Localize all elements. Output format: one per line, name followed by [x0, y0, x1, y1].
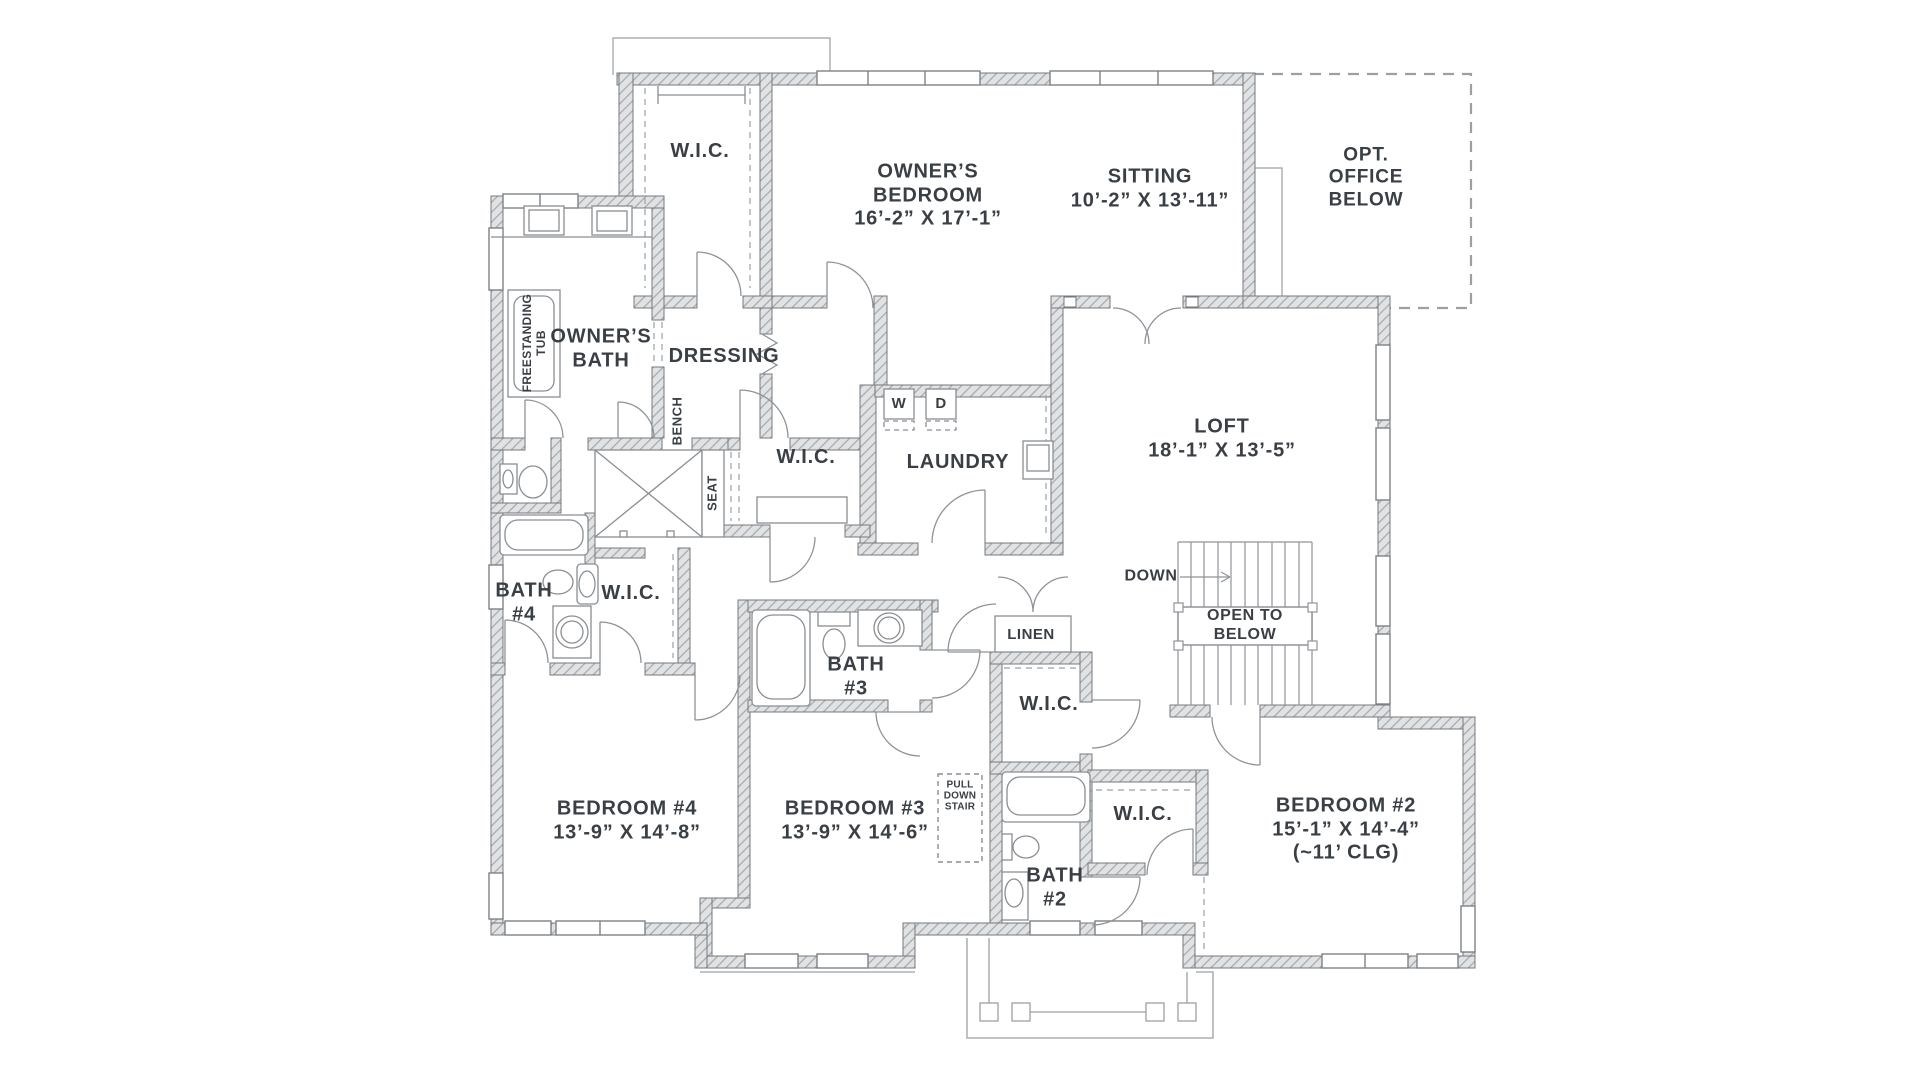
freestanding-tub-line1: FREESTANDING [520, 294, 534, 393]
owner-bath-line2: BATH [550, 349, 651, 373]
porch-outline [967, 938, 1213, 1038]
window-bottom-bedroom2-a [1322, 954, 1408, 968]
window-right-loft-1 [1376, 345, 1390, 420]
label-dryer: D [935, 395, 946, 413]
bedroom2-name: BEDROOM #2 [1272, 795, 1420, 819]
label-bench: BENCH [669, 397, 684, 446]
bedroom3-dims: 13’-9” X 14’-6” [781, 821, 929, 845]
window-right-loft-4 [1376, 634, 1390, 704]
window-bottom-bath2-a [1030, 921, 1080, 935]
freestanding-tub-line2: TUB [534, 294, 548, 393]
bedroom2-dims: 15’-1” X 14’-4” [1272, 818, 1420, 842]
window-right-bedroom2 [1461, 906, 1475, 952]
window-bottom-bath2-b [1095, 921, 1142, 935]
window-bottom-bedroom3-b [817, 954, 868, 968]
window-bottom-bedroom4-a [505, 921, 551, 935]
down-arrow [1180, 572, 1230, 582]
label-freestanding-tub: FREESTANDING TUB [520, 294, 548, 393]
room-label-bath4: BATH #4 [495, 579, 552, 626]
room-label-laundry: LAUNDRY [907, 451, 1010, 475]
opt-office-line1: OPT. [1329, 144, 1404, 166]
pull-down-stair-line3: STAIR [944, 802, 976, 813]
window-left-bedroom4 [489, 873, 503, 919]
stair-treads-lower [1191, 645, 1299, 705]
window-top-sitting [1050, 71, 1213, 85]
label-open-to-below: OPEN TO BELOW [1207, 607, 1283, 645]
room-label-wic-middle: W.I.C. [776, 446, 835, 470]
label-washer: W [892, 395, 907, 413]
label-down: DOWN [1124, 568, 1177, 587]
opt-office-line2: OFFICE [1329, 167, 1404, 189]
room-label-opt-office: OPT. OFFICE BELOW [1329, 144, 1404, 211]
bedroom4-name: BEDROOM #4 [553, 797, 701, 821]
bedroom2-ceiling: (~11’ CLG) [1272, 842, 1420, 866]
window-bottom-bedroom3-a [745, 954, 798, 968]
window-bottom-bedroom4-b [556, 921, 645, 935]
loft-dims: 18’-1” X 13’-5” [1148, 439, 1296, 463]
window-bottom-bedroom2-b [1417, 954, 1458, 968]
bath4-line1: BATH [495, 579, 552, 603]
window-right-loft-3 [1376, 556, 1390, 626]
pull-down-stair-line2: DOWN [944, 791, 976, 802]
owner-bedroom-line1: OWNER’S [854, 161, 1002, 185]
room-label-wic-bed3: W.I.C. [1019, 693, 1078, 717]
floor-plan-page: W.I.C. OWNER’S BEDROOM 16’-2” X 17’-1” S… [0, 0, 1920, 1080]
open-to-below-line1: OPEN TO [1207, 607, 1283, 626]
bath2-line2: #2 [1026, 888, 1083, 912]
stair-treads-upper [1191, 542, 1299, 607]
pull-down-stair-line1: PULL [944, 780, 976, 791]
room-label-bedroom4: BEDROOM #4 13’-9” X 14’-8” [553, 797, 701, 844]
label-pull-down-stair: PULL DOWN STAIR [944, 780, 976, 813]
open-to-below-line2: BELOW [1207, 626, 1283, 645]
room-label-wic-bath4: W.I.C. [601, 582, 660, 606]
room-label-bath3: BATH #3 [827, 653, 884, 700]
room-label-bedroom3: BEDROOM #3 13’-9” X 14’-6” [781, 797, 929, 844]
opt-office-line3: BELOW [1329, 189, 1404, 211]
sitting-name: SITTING [1071, 165, 1229, 189]
window-top-owner-bedroom [817, 71, 980, 85]
room-label-wic-bed2: W.I.C. [1113, 803, 1172, 827]
window-right-loft-2 [1376, 428, 1390, 500]
bedroom3-name: BEDROOM #3 [781, 797, 929, 821]
room-label-linen: LINEN [1007, 626, 1055, 644]
bath4-line2: #4 [495, 603, 552, 627]
bedroom4-dims: 13’-9” X 14’-8” [553, 821, 701, 845]
room-label-dressing: DRESSING [669, 345, 780, 369]
room-label-owner-bedroom: OWNER’S BEDROOM 16’-2” X 17’-1” [854, 161, 1002, 232]
loft-name: LOFT [1148, 415, 1296, 439]
label-seat: SEAT [704, 475, 719, 511]
room-label-bath2: BATH #2 [1026, 864, 1083, 911]
owner-bedroom-dims: 16’-2” X 17’-1” [854, 208, 1002, 232]
owner-bath-line1: OWNER’S [550, 325, 651, 349]
room-label-loft: LOFT 18’-1” X 13’-5” [1148, 415, 1296, 462]
bath2-line1: BATH [1026, 864, 1083, 888]
room-label-owner-closet: W.I.C. [670, 140, 729, 164]
room-label-sitting: SITTING 10’-2” X 13’-11” [1071, 165, 1229, 212]
room-label-owner-bath: OWNER’S BATH [550, 325, 651, 372]
room-label-bedroom2: BEDROOM #2 15’-1” X 14’-4” (~11’ CLG) [1272, 795, 1420, 866]
bath3-line1: BATH [827, 653, 884, 677]
owner-bedroom-line2: BEDROOM [854, 184, 1002, 208]
sitting-dims: 10’-2” X 13’-11” [1071, 189, 1229, 213]
bath3-line2: #3 [827, 677, 884, 701]
